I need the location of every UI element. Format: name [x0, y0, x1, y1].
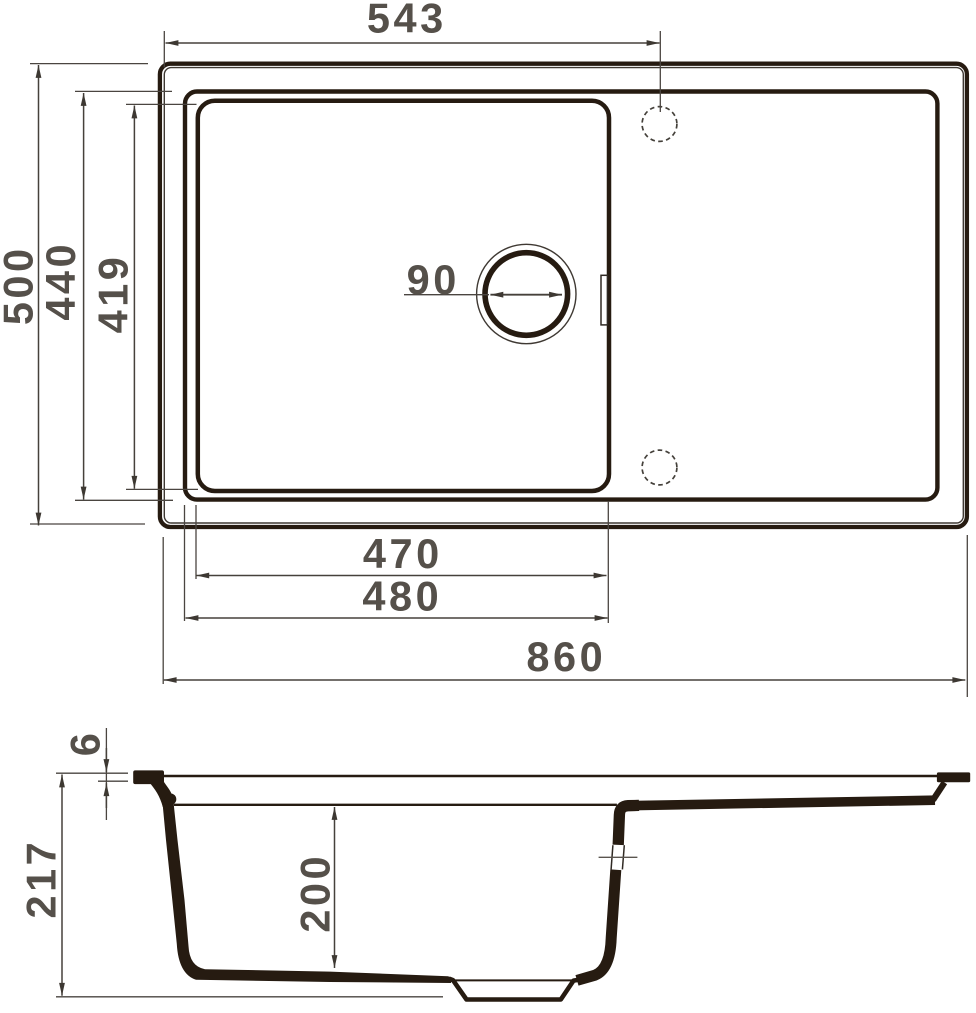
- svg-text:470: 470: [363, 530, 443, 577]
- svg-text:543: 543: [367, 0, 447, 42]
- svg-text:419: 419: [89, 254, 136, 334]
- svg-text:217: 217: [18, 839, 65, 919]
- svg-text:500: 500: [0, 245, 42, 325]
- svg-text:6: 6: [62, 730, 109, 757]
- svg-text:200: 200: [292, 853, 339, 933]
- svg-text:90: 90: [407, 256, 460, 303]
- svg-text:440: 440: [37, 241, 84, 321]
- svg-text:480: 480: [362, 573, 442, 620]
- svg-text:860: 860: [526, 633, 606, 680]
